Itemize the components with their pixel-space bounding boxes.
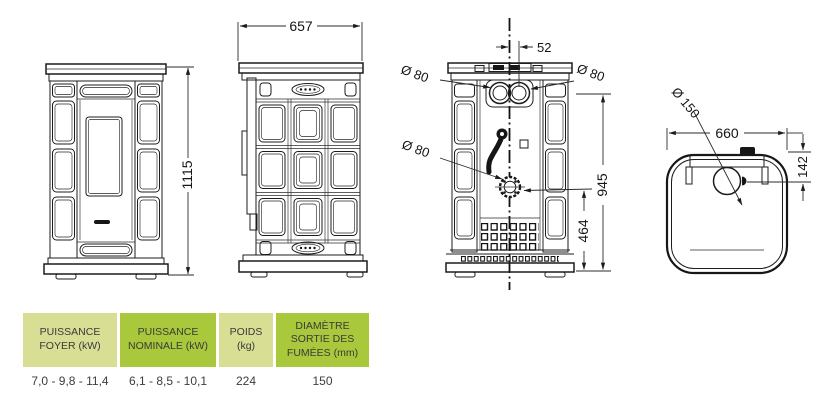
header-puissance-nominale: PUISSANCE NOMINALE (kW) bbox=[120, 313, 216, 367]
dim-pipe-height: 945 bbox=[594, 173, 610, 197]
spec-table-header-row: PUISSANCE FOYER (kW) PUISSANCE NOMINALE … bbox=[23, 313, 369, 367]
top-knob bbox=[740, 147, 755, 155]
dim-front-height: 1115 bbox=[179, 160, 195, 189]
spec-table: PUISSANCE FOYER (kW) PUISSANCE NOMINALE … bbox=[23, 313, 369, 393]
header-diametre-fumees: DIAMÈTRE SORTIE DES FUMÉES (mm) bbox=[276, 313, 369, 367]
dim-flue-right: Ø 80 bbox=[575, 61, 607, 85]
dim-top-flue-dia: Ø 150 bbox=[669, 84, 703, 121]
top-view: Ø 150 660 142 bbox=[667, 84, 811, 273]
side-view: 657 bbox=[238, 18, 367, 277]
dim-top-width: 660 bbox=[715, 125, 739, 141]
dim-flue-left: Ø 80 bbox=[399, 62, 431, 86]
back-view: 52 Ø 80 Ø 80 Ø 80 945 464 bbox=[399, 18, 611, 290]
value-diametre-fumees: 150 bbox=[276, 369, 369, 393]
door-window bbox=[86, 117, 122, 196]
vent-strip bbox=[461, 256, 559, 262]
dim-outlet-height: 464 bbox=[575, 219, 591, 243]
value-puissance-nominale: 6,1 - 8,5 - 10,1 bbox=[120, 369, 216, 393]
vent-grid bbox=[481, 222, 539, 252]
header-poids: POIDS (kg) bbox=[219, 313, 273, 367]
value-poids: 224 bbox=[219, 369, 273, 393]
dim-top-flue-offset: 142 bbox=[795, 156, 810, 178]
stove-spec-sheet: 1115 bbox=[0, 0, 824, 402]
header-puissance-foyer: PUISSANCE FOYER (kW) bbox=[23, 313, 117, 367]
top-flue-collar bbox=[714, 168, 741, 195]
dim-outlet-dia: Ø 80 bbox=[400, 137, 432, 161]
dim-side-depth: 657 bbox=[289, 18, 313, 34]
front-view: 1115 bbox=[44, 64, 195, 279]
spec-table-values-row: 7,0 - 9,8 - 11,4 6,1 - 8,5 - 10,1 224 15… bbox=[23, 367, 369, 393]
dim-pipe-offset: 52 bbox=[537, 40, 551, 55]
door-handle bbox=[94, 220, 110, 224]
value-puissance-foyer: 7,0 - 9,8 - 11,4 bbox=[23, 369, 117, 393]
